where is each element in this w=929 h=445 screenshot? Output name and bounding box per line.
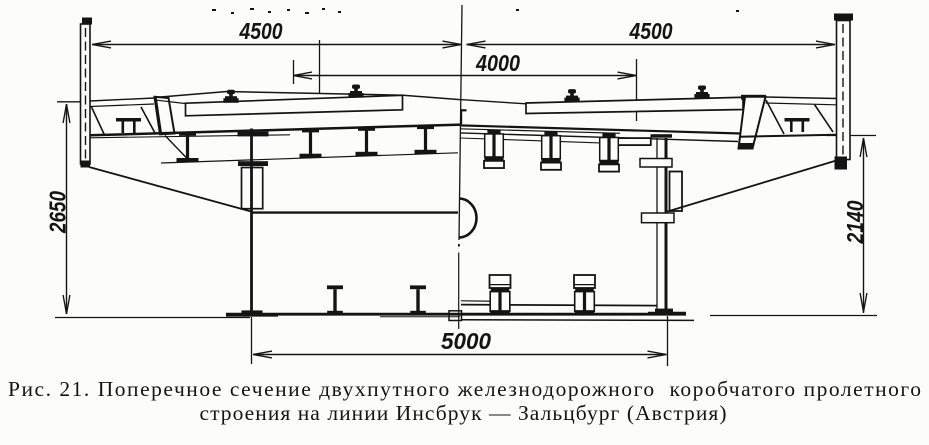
svg-text:4000: 4000 [475, 50, 520, 76]
svg-text:Рис. 21. Поперечное сечение дв: Рис. 21. Поперечное сечение двухпутного … [8, 377, 921, 401]
svg-text:2650: 2650 [45, 191, 71, 234]
svg-text:2140: 2140 [842, 200, 868, 244]
svg-text:5000: 5000 [441, 328, 491, 354]
svg-text:4500: 4500 [239, 18, 283, 44]
svg-text:4500: 4500 [629, 18, 673, 44]
svg-text:строения на линии Инсбрук — За: строения на линии Инсбрук — Зальцбург (А… [200, 401, 727, 425]
